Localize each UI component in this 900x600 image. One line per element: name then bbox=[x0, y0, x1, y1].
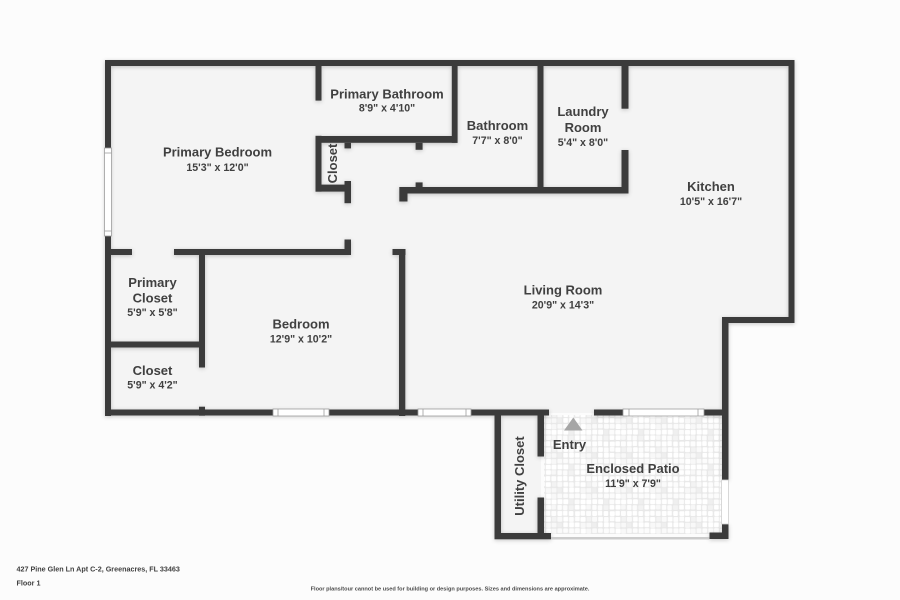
svg-text:11'9" x 7'9": 11'9" x 7'9" bbox=[605, 478, 661, 490]
svg-text:8'9" x 4'10": 8'9" x 4'10" bbox=[359, 103, 415, 115]
svg-text:Living Room: Living Room bbox=[524, 283, 603, 298]
svg-text:Floor plans/tour cannot be use: Floor plans/tour cannot be used for buil… bbox=[311, 587, 590, 593]
svg-text:Room: Room bbox=[565, 120, 602, 135]
svg-text:Enclosed Patio: Enclosed Patio bbox=[586, 461, 679, 476]
svg-text:20'9" x 14'3": 20'9" x 14'3" bbox=[532, 300, 594, 312]
svg-text:Closet: Closet bbox=[325, 143, 340, 183]
svg-text:7'7" x 8'0": 7'7" x 8'0" bbox=[472, 135, 522, 147]
svg-text:5'9" x 4'2": 5'9" x 4'2" bbox=[127, 380, 177, 392]
svg-text:Floor 1: Floor 1 bbox=[17, 579, 41, 588]
svg-text:Bathroom: Bathroom bbox=[467, 118, 528, 133]
svg-text:Closet: Closet bbox=[133, 291, 173, 306]
svg-text:15'3" x 12'0": 15'3" x 12'0" bbox=[186, 162, 248, 174]
svg-text:Kitchen: Kitchen bbox=[687, 179, 735, 194]
svg-text:Primary Bathroom: Primary Bathroom bbox=[330, 87, 443, 102]
svg-text:5'4" x 8'0": 5'4" x 8'0" bbox=[558, 137, 608, 149]
svg-text:Bedroom: Bedroom bbox=[272, 317, 329, 332]
svg-text:427 Pine Glen Ln Apt C-2, Gree: 427 Pine Glen Ln Apt C-2, Greenacres, FL… bbox=[17, 565, 180, 574]
svg-text:10'5" x 16'7": 10'5" x 16'7" bbox=[680, 196, 742, 208]
svg-text:Utility Closet: Utility Closet bbox=[512, 436, 527, 516]
svg-text:Closet: Closet bbox=[133, 363, 173, 378]
svg-text:12'9" x 10'2": 12'9" x 10'2" bbox=[270, 334, 332, 346]
svg-text:Primary Bedroom: Primary Bedroom bbox=[163, 145, 272, 160]
svg-text:Primary: Primary bbox=[128, 275, 177, 290]
svg-text:5'9" x 5'8": 5'9" x 5'8" bbox=[127, 307, 177, 319]
svg-text:Entry: Entry bbox=[553, 437, 587, 452]
svg-text:Laundry: Laundry bbox=[557, 104, 609, 119]
